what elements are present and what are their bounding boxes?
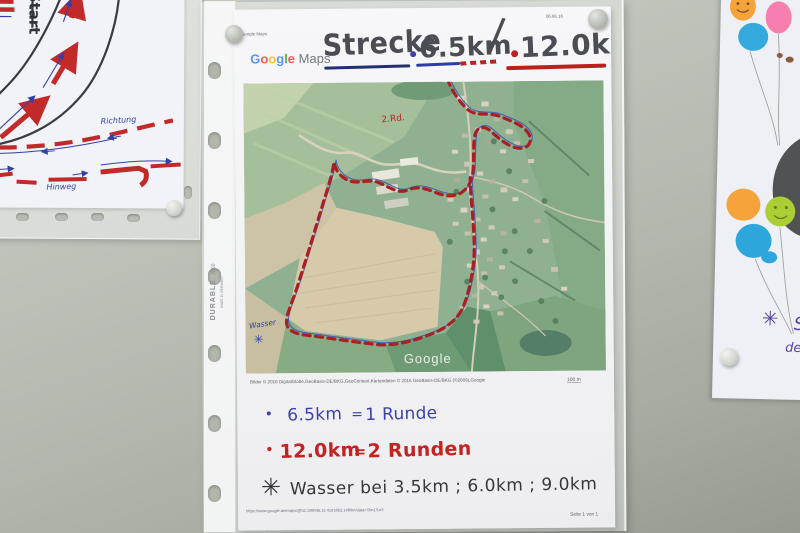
punch-hole [208,415,221,432]
red-dashed-route [151,164,181,166]
track-sketch-drawing: Start Richtung [0,0,185,208]
brown-dot [777,53,783,58]
punch-hole [55,213,68,221]
photo-of-notice-board: Start Richtung [0,0,800,533]
note-fragment-bottom: de [785,341,800,356]
orange-balloon [726,188,761,221]
blue-arrow [63,1,70,22]
richtung-label: Richtung [100,115,136,126]
logo-letter: G [250,51,260,66]
hinweg-label: Hinweg [46,182,76,192]
purple-star-icon: ✳ [762,306,779,330]
durable-origin: MADE IN GERMANY [220,254,224,331]
punch-hole [127,214,140,222]
print-header: Google Maps [241,31,267,36]
legend-bullet-red: • [267,441,273,459]
push-pin [588,9,608,29]
water-note-text: Wasser bei 3.5km ; 6.0km ; 9.0km [290,474,598,499]
note-fragment-top: S [793,314,800,335]
logo-letter: e [288,51,295,66]
legend-equals-2: = [354,443,367,461]
logo-letter: o [268,51,276,66]
title-underline-dark [324,64,410,69]
push-pin [166,200,182,216]
page-footer: Seite 1 von 1 [570,511,598,517]
map-url: https://www.google.de/maps/@52.198046,11… [246,508,383,514]
punch-hole [184,186,192,199]
red-dashed-route [0,174,13,176]
punch-hole [208,132,221,149]
logo-letter: g [276,51,284,66]
google-maps-logo: Google Maps [250,51,330,67]
route-map-page: Google Maps 06.06.16 Google Maps Strecke… [234,6,616,530]
red-dashed-route [101,168,147,185]
title-underline-red [506,64,606,71]
punch-hole [91,213,104,221]
red-dashed-route [49,179,87,180]
blue-balloon [738,23,769,52]
punch-hole [16,213,29,221]
print-date: 06.06.16 [546,14,563,19]
legend-distance-2: 12.0km [279,439,361,463]
push-pin [720,348,738,366]
punch-hole [208,62,221,79]
legend-laps-1: 1 Runde [365,403,438,425]
legend-laps-2: 2 Runden [367,438,471,463]
punch-hole [208,485,221,502]
legend-bullet-blue: • [266,405,271,422]
blue-arrow [0,169,13,170]
logo-letter: o [260,51,268,66]
durable-model: 2560 [211,264,217,275]
durable-brand-mark: DURABLE 2560 MADE IN GERMANY [203,247,231,337]
red-dashed-route [17,182,37,183]
title-distance-2: 12.0km [519,26,615,64]
start-label: Start [25,0,43,34]
legend-equals-1: = [351,407,363,423]
title-underline-red-dashes [460,59,498,65]
blue-arrow [73,173,87,175]
balloon-drawing: ✳ S de [712,0,800,400]
map-credits: Bilder © 2016 DigitalGlobe,GeoBasis-DE/B… [250,377,485,384]
left-sketch-paper: Start Richtung [0,0,185,208]
red-dot-marker [511,50,518,57]
red-arrow [1,102,43,138]
wasser-star-icon: ✳ [254,332,264,346]
brown-dot [786,57,794,63]
pink-balloon [765,1,792,34]
red-arrow [71,0,77,18]
punch-hole [208,202,221,219]
blue-dot-marker [410,51,416,57]
right-balloon-paper: ✳ S de [712,0,800,400]
punch-hole [208,345,221,362]
durable-brand: DURABLE [210,279,217,320]
water-star-icon: ✳ [261,473,281,502]
legend-distance-1: 6.5km [287,404,342,425]
blue-arrow [43,151,55,152]
push-pin [225,25,243,43]
orange-balloon [730,0,757,21]
map-scale: 100 m [567,377,581,383]
google-watermark: Google [404,351,452,366]
satellite-route-map: 2.Rd. Wasser ✳ Google [243,80,606,373]
title-underline-blue [416,62,460,67]
